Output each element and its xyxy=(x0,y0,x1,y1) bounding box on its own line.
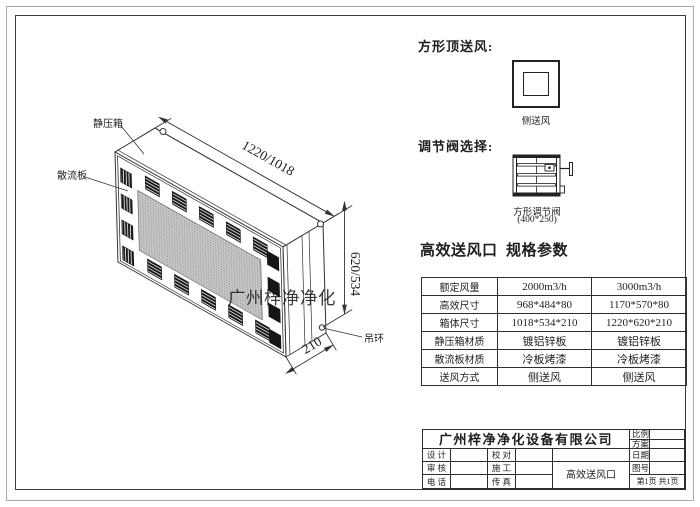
top-supply-heading: 方形顶送风: xyxy=(418,36,493,55)
table-row: 高效尺寸 968*484*80 1170*570*80 xyxy=(422,296,687,314)
scale-value xyxy=(650,430,686,440)
check-label: 校 对 xyxy=(488,449,516,462)
spec-label: 静压箱材质 xyxy=(422,332,498,350)
spec-label: 散流板材质 xyxy=(422,350,498,368)
spec-table: 额定风量 2000m3/h 3000m3/h 高效尺寸 968*484*80 1… xyxy=(421,277,687,386)
scheme-label: 方案 xyxy=(630,440,650,449)
construct-label: 施 工 xyxy=(488,462,516,475)
watermark-text: 广州梓净净化 xyxy=(228,288,336,308)
design-label: 设 计 xyxy=(423,449,451,462)
spec-value: 968*484*80 xyxy=(498,296,592,314)
square-valve-icon xyxy=(505,150,583,202)
scheme-value xyxy=(650,440,686,449)
label-lifting-ring: 吊环 xyxy=(364,333,384,345)
spec-value: 冷板烤漆 xyxy=(498,350,592,368)
leader-lifting-ring xyxy=(325,329,362,338)
square-diffuser-inner xyxy=(523,72,549,96)
spec-value: 侧送风 xyxy=(498,368,592,386)
table-row: 箱体尺寸 1018*534*210 1220*620*210 xyxy=(422,314,687,332)
drawing-no-value xyxy=(650,462,686,475)
spec-value: 2000m3/h xyxy=(498,278,592,296)
design-value xyxy=(451,449,488,462)
drawing-no-label: 图号 xyxy=(630,462,650,475)
product-name: 高效送风口 xyxy=(553,462,630,490)
spec-label: 高效尺寸 xyxy=(422,296,498,314)
check-value xyxy=(516,449,553,462)
dim-height-text: 620/534 xyxy=(348,252,363,297)
date-value xyxy=(650,449,686,462)
lifting-ring-top-left xyxy=(160,129,166,135)
spec-value: 1018*534*210 xyxy=(498,314,592,332)
label-static-pressure-box: 静压箱 xyxy=(93,117,123,130)
square-diffuser-icon xyxy=(512,60,560,108)
label-diffuser-plate: 散流板 xyxy=(57,169,87,182)
blank-cell xyxy=(553,449,630,462)
scale-label: 比例 xyxy=(630,430,650,440)
phone-value xyxy=(451,475,488,490)
valve-caption-size: (400*250) xyxy=(500,215,574,225)
review-value xyxy=(451,462,488,475)
spec-value: 1220*620*210 xyxy=(592,314,687,332)
page-info: 第1页 共1页 xyxy=(630,475,686,490)
review-label: 审 核 xyxy=(423,462,451,475)
company-name: 广州梓净净化设备有限公司 xyxy=(423,430,630,449)
spec-label: 额定风量 xyxy=(422,278,498,296)
spec-label: 送风方式 xyxy=(422,368,498,386)
table-row: 静压箱材质 镀铝锌板 镀铝锌板 xyxy=(422,332,687,350)
construct-value xyxy=(516,462,553,475)
top-supply-caption: 侧送风 xyxy=(508,113,564,127)
lifting-ring-bottom-right xyxy=(319,325,324,330)
date-label: 日期 xyxy=(630,449,650,462)
valve-handle xyxy=(570,163,573,176)
spec-label: 箱体尺寸 xyxy=(422,314,498,332)
isometric-drawing: 1220/1018 620/534 210 静压箱 散流板 吊环 广州梓净净化 xyxy=(0,0,420,420)
spec-table-title: 高效送风口 规格参数 xyxy=(420,239,568,260)
table-row: 送风方式 侧送风 侧送风 xyxy=(422,368,687,386)
spec-value: 冷板烤漆 xyxy=(592,350,687,368)
spec-value: 3000m3/h xyxy=(592,278,687,296)
fax-label: 传 真 xyxy=(488,475,516,490)
spec-value: 1170*570*80 xyxy=(592,296,687,314)
dimension-height xyxy=(323,206,352,328)
fax-value xyxy=(516,475,553,490)
table-row: 额定风量 2000m3/h 3000m3/h xyxy=(422,278,687,296)
lifting-ring-top-right xyxy=(318,221,324,227)
spec-value: 镀铝锌板 xyxy=(592,332,687,350)
drawing-sheet: 1220/1018 620/534 210 静压箱 散流板 吊环 广州梓净净化 … xyxy=(0,0,700,507)
valve-heading: 调节阀选择: xyxy=(418,136,493,155)
table-row: 散流板材质 冷板烤漆 冷板烤漆 xyxy=(422,350,687,368)
spec-value: 侧送风 xyxy=(592,368,687,386)
dim-width-text: 1220/1018 xyxy=(239,137,297,179)
phone-label: 电 话 xyxy=(423,475,451,490)
title-block: 广州梓净净化设备有限公司 比例 方案 设 计 校 对 日期 审 核 施 工 高效… xyxy=(422,429,685,489)
spec-value: 镀铝锌板 xyxy=(498,332,592,350)
